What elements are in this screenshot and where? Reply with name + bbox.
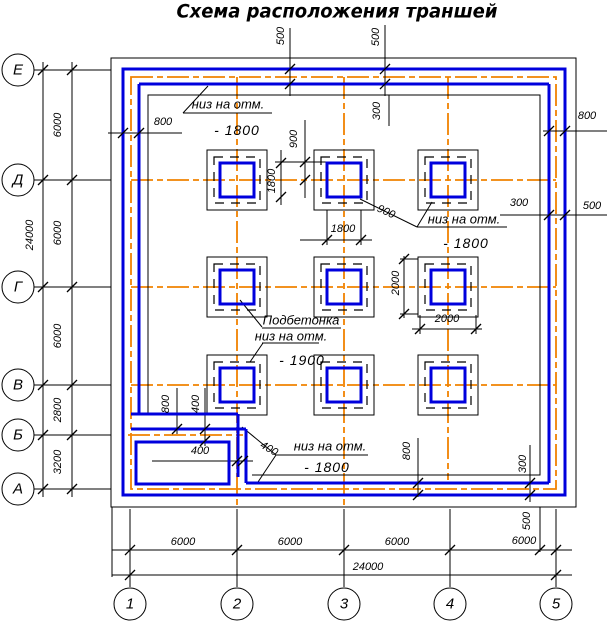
dimension-label: 6000 bbox=[52, 324, 64, 348]
annotation-label: Подбетонка bbox=[263, 313, 340, 328]
dimension-label: 1800 bbox=[331, 223, 355, 235]
annotation-label: низ на отм. bbox=[255, 329, 327, 344]
axis-marker-Г: Г bbox=[2, 271, 35, 304]
dimension-label: 500 bbox=[521, 512, 533, 530]
dimension-label: 800 bbox=[401, 442, 413, 460]
axis-marker-3: 3 bbox=[328, 588, 361, 621]
dimension-label: 2000 bbox=[390, 271, 402, 295]
dimension-label: 800 bbox=[154, 116, 172, 128]
dimension-label: 900 bbox=[288, 130, 300, 148]
dimension-label: 1800 bbox=[266, 169, 278, 193]
annotation-label: низ на отм. bbox=[428, 212, 500, 227]
axis-marker-Е: Е bbox=[2, 54, 35, 87]
dimension-label: 500 bbox=[275, 27, 287, 45]
drawing-canvas: Схема расположения траншей 5005008008003… bbox=[0, 0, 612, 623]
footing-outlines bbox=[207, 150, 478, 415]
annotation-label: - 1800 bbox=[443, 235, 489, 251]
dimension-label: 500 bbox=[583, 200, 601, 212]
dimension-label: 24000 bbox=[24, 220, 36, 251]
dimension-label: 6000 bbox=[52, 221, 64, 245]
dimension-label: 6000 bbox=[52, 113, 64, 137]
dimension-lines bbox=[34, 25, 607, 587]
drawing-title: Схема расположения траншей bbox=[137, 0, 537, 22]
axis-marker-5: 5 bbox=[540, 588, 573, 621]
dimension-label: 6000 bbox=[171, 536, 195, 548]
annotation-label: низ на отм. bbox=[294, 439, 366, 454]
annotation-label: - 1900 bbox=[279, 352, 325, 368]
axis-marker-4: 4 bbox=[434, 588, 467, 621]
axis-marker-1: 1 bbox=[114, 588, 147, 621]
annotation-label: низ на отм. bbox=[192, 97, 264, 112]
dimension-label: 6000 bbox=[512, 535, 536, 547]
dimension-label: 6000 bbox=[385, 536, 409, 548]
dimension-label: 800 bbox=[160, 395, 172, 413]
dimension-label: 300 bbox=[371, 102, 383, 120]
annotation-label: - 1800 bbox=[304, 459, 350, 475]
axis-marker-Д: Д bbox=[2, 164, 35, 197]
dimension-label: 300 bbox=[517, 455, 529, 473]
dimension-label: 24000 bbox=[353, 561, 384, 573]
dimension-label: 2000 bbox=[435, 313, 459, 325]
dimension-label: 2800 bbox=[52, 398, 64, 422]
dimension-label: 3200 bbox=[52, 450, 64, 474]
dimension-label: 6000 bbox=[278, 536, 302, 548]
axis-marker-Б: Б bbox=[2, 419, 35, 452]
footing-trench-squares bbox=[220, 163, 465, 402]
axis-marker-В: В bbox=[2, 369, 35, 402]
dimension-label: 500 bbox=[370, 28, 382, 46]
axis-marker-2: 2 bbox=[221, 588, 254, 621]
dimension-label: 800 bbox=[578, 110, 596, 122]
dimension-label: 400 bbox=[191, 445, 209, 457]
dimension-label: 300 bbox=[510, 197, 528, 209]
annotation-label: - 1800 bbox=[214, 122, 260, 138]
dimension-label: 400 bbox=[190, 395, 202, 413]
axis-marker-А: А bbox=[2, 473, 35, 506]
